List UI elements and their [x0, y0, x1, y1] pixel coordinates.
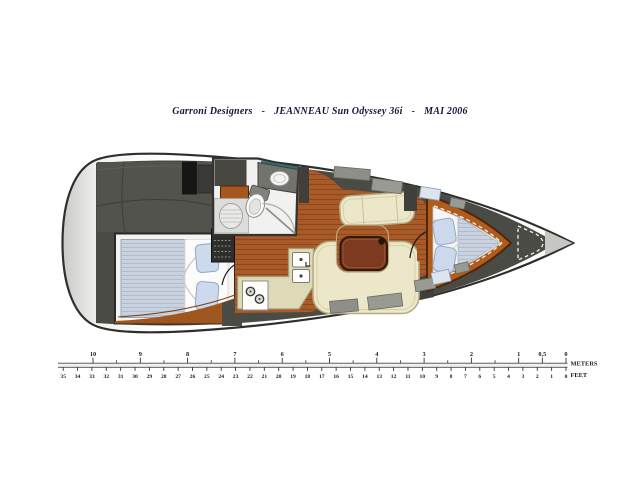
feet-tick-label: 33: [89, 374, 95, 380]
feet-tick-label: 5: [493, 374, 496, 380]
meters-tick-label: 0,5: [538, 351, 546, 358]
feet-tick-label: 29: [147, 374, 153, 380]
meters-tick-label: 2: [470, 351, 473, 358]
feet-tick-label: 35: [60, 374, 66, 380]
feet-tick-label: 6: [478, 374, 481, 380]
feet-tick-label: 34: [75, 374, 81, 380]
drawing-title: Garroni Designers-JEANNEAU Sun Odyssey 3…: [0, 106, 640, 117]
feet-tick-label: 2: [536, 374, 539, 380]
feet-tick-label: 12: [391, 374, 397, 380]
cockpit: [97, 162, 215, 233]
feet-tick-label: 23: [233, 374, 239, 380]
feet-tick-label: 30: [132, 374, 138, 380]
feet-tick-label: 9: [435, 374, 438, 380]
feet-tick-label: 19: [290, 374, 296, 380]
companionway-hatch: [182, 162, 197, 195]
head-compartment: [213, 159, 298, 236]
port-settee: [339, 191, 415, 227]
feet-tick-label: 14: [362, 374, 368, 380]
feet-tick-label: 21: [262, 374, 268, 380]
mast-pillar: [299, 167, 309, 203]
feet-tick-label: 32: [103, 374, 109, 380]
feet-tick-label: 7: [464, 374, 467, 380]
feet-tick-label: 3: [522, 374, 525, 380]
feet-tick-label: 20: [276, 374, 282, 380]
feet-tick-label: 10: [420, 374, 426, 380]
scale-ruler: 109876543210,503534333231302928272625242…: [58, 351, 598, 380]
stove: [243, 281, 269, 310]
feet-tick-label: 16: [333, 374, 339, 380]
feet-tick-label: 11: [405, 374, 410, 380]
page: Garroni Designers-JEANNEAU Sun Odyssey 3…: [0, 0, 640, 480]
feet-tick-label: 4: [507, 374, 510, 380]
meters-tick-label: 5: [328, 351, 331, 358]
aft-berth-mattress: [121, 240, 187, 318]
title-designer: Garroni Designers: [172, 106, 252, 117]
feet-tick-label: 15: [348, 374, 354, 380]
bulkhead: [404, 185, 417, 211]
shower-drain: [220, 204, 243, 229]
table-knob: [378, 238, 384, 244]
meters-tick-label: 9: [139, 351, 142, 358]
meters-tick-label: 1: [517, 351, 520, 358]
salon-table: [341, 237, 388, 270]
feet-tick-label: 22: [247, 374, 253, 380]
title-separator: -: [262, 106, 266, 117]
meters-tick-label: 7: [233, 351, 236, 358]
meters-tick-label: 3: [423, 351, 426, 358]
feet-tick-label: 25: [204, 374, 210, 380]
feet-tick-label: 31: [118, 374, 124, 380]
shower-seat: [221, 186, 249, 199]
v-berth-pillow: [432, 245, 457, 273]
feet-tick-label: 1: [550, 374, 553, 380]
feet-tick-label: 27: [175, 374, 181, 380]
washbasin: [270, 171, 289, 185]
meters-unit-label: METERS: [571, 361, 598, 368]
feet-tick-label: 28: [161, 374, 167, 380]
feet-tick-label: 18: [305, 374, 311, 380]
feet-unit-label: FEET: [571, 372, 588, 379]
feet-tick-label: 17: [319, 374, 325, 380]
meters-tick-label: 8: [186, 351, 189, 358]
meters-tick-label: 0: [564, 351, 567, 358]
bow-tip: [545, 231, 573, 256]
title-model: JEANNEAU Sun Odyssey 36i: [274, 106, 402, 117]
title-date: MAI 2006: [424, 106, 468, 117]
feet-tick-label: 0: [565, 374, 568, 380]
boat-plan: 109876543210,503534333231302928272625242…: [0, 0, 640, 480]
feet-tick-label: 26: [190, 374, 196, 380]
title-separator: -: [412, 106, 416, 117]
meters-tick-label: 10: [90, 351, 96, 358]
v-berth-pillow: [432, 217, 457, 245]
feet-tick-label: 13: [376, 374, 382, 380]
feet-tick-label: 24: [218, 374, 224, 380]
feet-tick-label: 8: [450, 374, 453, 380]
meters-tick-label: 4: [375, 351, 379, 358]
meters-tick-label: 6: [281, 351, 284, 358]
